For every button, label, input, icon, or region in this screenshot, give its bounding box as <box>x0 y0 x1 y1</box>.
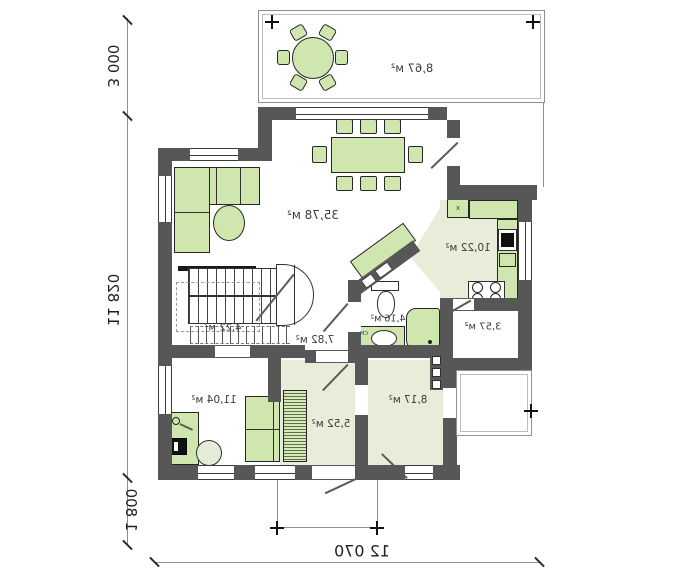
dining-chair <box>360 176 377 191</box>
vent-shaft <box>430 352 443 390</box>
window-kitchen <box>518 222 532 280</box>
stove-burner <box>490 282 501 293</box>
monitor-screen-slot <box>174 442 178 451</box>
side-porch <box>456 370 532 436</box>
sofa-seam <box>240 167 241 205</box>
hall-area-label: 7,82 м² <box>296 334 335 346</box>
vent-cell <box>432 368 441 377</box>
wall-kitchen-top <box>447 185 537 200</box>
wardrobe-hanging-rail <box>283 390 307 462</box>
washer-label: СМ <box>360 331 368 337</box>
dim-label-12070: 12 070 <box>334 542 390 561</box>
door-gap-office <box>215 346 250 357</box>
dining-chair <box>384 176 401 191</box>
dining-chair <box>384 119 401 134</box>
dim-label-11820: 11 820 <box>104 274 122 327</box>
floor-plan: 8,67 м² 35,78 м² 10,22 м² 3,57 м² 4,16 м… <box>0 0 700 575</box>
dim-label-1800: 1 800 <box>122 489 140 532</box>
door-gap-entrance <box>312 466 356 479</box>
door-gap-entry-side <box>443 388 457 418</box>
survey-cross-side-porch <box>524 404 538 418</box>
entry-area-label: 8,17 м² <box>389 394 428 406</box>
terrace-round-table <box>292 37 334 79</box>
door-gap-bathroom <box>348 302 361 332</box>
window-bottom-office <box>198 465 234 480</box>
corner-sofa-vertical <box>174 167 210 253</box>
window-left-living <box>158 176 172 222</box>
vestibule-area-label: 5,52 м² <box>312 418 351 430</box>
kitchen-counter-top <box>469 200 518 219</box>
office-area-label: 11,04 м² <box>191 394 237 406</box>
terrace-area-label: 8,67 м² <box>391 61 434 75</box>
dining-chair <box>336 119 353 134</box>
front-porch-edge <box>277 527 378 528</box>
dining-table <box>331 137 405 173</box>
dining-chair <box>408 146 423 163</box>
dim-line-bottom <box>154 562 540 563</box>
door-gap-vestibule <box>316 351 348 362</box>
sofa-seam <box>174 212 210 213</box>
terrace-right-edge <box>543 103 544 187</box>
dining-chair <box>360 119 377 134</box>
kitchen-sink <box>501 233 514 247</box>
stairs-area-label: 4,22 м² <box>205 323 242 334</box>
shower-drain <box>428 340 432 344</box>
kitchen-cabinet <box>499 253 516 267</box>
office-sofa-seam <box>245 429 280 430</box>
dining-chair <box>312 146 327 163</box>
survey-cross-porch-left <box>270 521 284 535</box>
pantry-floor <box>453 313 518 358</box>
window-bottom-office2 <box>255 465 295 480</box>
coffee-table <box>213 205 245 241</box>
window-left-office <box>158 366 172 414</box>
door-swing-bathroom <box>323 303 348 332</box>
door-gap-vestibule-entry <box>355 385 368 415</box>
window-topleft <box>190 148 238 161</box>
window-living-top <box>296 107 428 120</box>
terrace-chair <box>277 50 290 65</box>
living-area-label: 35,78 м² <box>287 208 339 222</box>
vent-cell <box>432 380 441 389</box>
dining-chair <box>336 176 353 191</box>
desk-chair <box>196 440 222 466</box>
pantry-area-label: 3,57 м² <box>465 322 502 333</box>
bathroom-area-label: 4,16 м² <box>370 314 405 325</box>
window-bottom-entry <box>405 465 433 480</box>
computer-monitor <box>170 438 187 455</box>
stair-landing <box>276 264 314 326</box>
survey-cross-terrace-left <box>265 15 279 29</box>
office-sofa-back <box>273 396 274 462</box>
kitchen-area-label: 10,22 м² <box>445 242 491 254</box>
stove-burner <box>472 282 483 293</box>
door-swing-entrance-out <box>325 478 357 494</box>
kitchen-unit-label: x <box>456 204 460 212</box>
terrace-chair <box>335 50 348 65</box>
wall-vestibule-entry <box>355 358 368 480</box>
sofa-seam <box>216 167 217 205</box>
wall-office-vestibule <box>268 358 281 402</box>
survey-cross-terrace-right <box>526 15 540 29</box>
survey-cross-porch-right <box>370 521 384 535</box>
vent-cell <box>432 356 441 365</box>
dim-label-3000: 3 000 <box>104 45 122 88</box>
dim-line-left <box>127 18 128 546</box>
shower-tray <box>406 308 440 350</box>
